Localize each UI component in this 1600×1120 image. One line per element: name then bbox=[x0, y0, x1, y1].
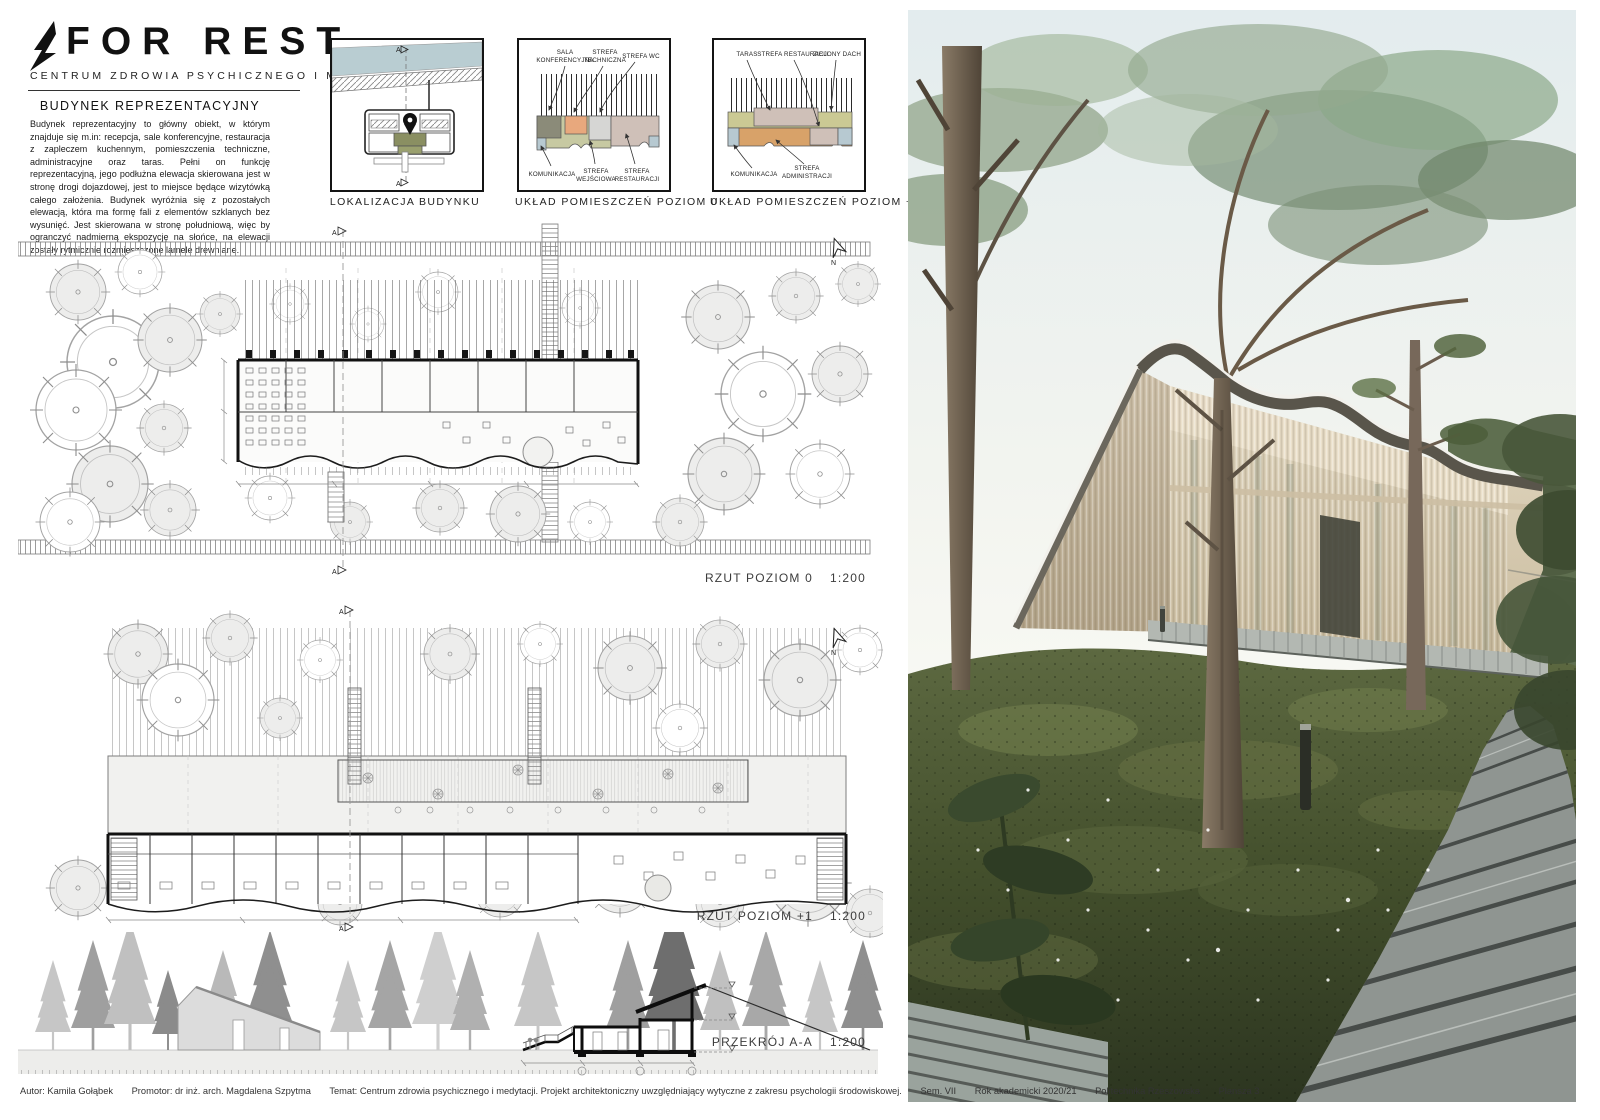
roof-terrace bbox=[338, 760, 748, 802]
section-marker: A bbox=[396, 47, 401, 54]
zone-label: ZIELONY DACH bbox=[813, 51, 861, 58]
diagram-level1-caption: UKŁAD POMIESZCZEŃ POZIOM +1 bbox=[710, 196, 864, 208]
diagram-location: A A bbox=[330, 38, 484, 192]
zone-label: RESTAURACJI bbox=[615, 176, 660, 183]
floor-plan-level0: A A N RZUT POZIOM 0 1:200 bbox=[18, 222, 883, 597]
section-scale: 1:200 bbox=[830, 1035, 866, 1049]
elevation-building bbox=[178, 987, 320, 1050]
footer-promotor: Promotor: dr inż. arch. Magdalena Szpytm… bbox=[132, 1086, 311, 1096]
zone-label: TECHNICZNA bbox=[584, 57, 627, 64]
north-label: N bbox=[831, 260, 836, 267]
north-label: N bbox=[831, 650, 836, 657]
diagram-level0-caption: UKŁAD POMIESZCZEŃ POZIOM 0 bbox=[515, 196, 669, 208]
entrance bbox=[1320, 515, 1360, 638]
plan0-label: RZUT POZIOM 0 bbox=[705, 571, 813, 585]
diagram-location-caption: LOKALIZACJA BUDYNKU bbox=[328, 196, 482, 208]
plan0-scale: 1:200 bbox=[830, 571, 866, 585]
zone-label: STREFA bbox=[794, 165, 820, 172]
plan1-scale: 1:200 bbox=[830, 909, 866, 923]
zone-label: STREFA bbox=[592, 49, 618, 56]
zone-label: STREFA bbox=[624, 168, 650, 175]
entry-stairs bbox=[328, 472, 344, 522]
footer-year: Rok akademicki 2020/21 bbox=[975, 1086, 1077, 1096]
section-marker: A bbox=[339, 609, 344, 616]
description-heading: BUDYNEK REPREZENTACYJNY bbox=[28, 99, 272, 113]
stair-core bbox=[817, 838, 843, 900]
footer-author: Autor: Kamila Gołąbek bbox=[20, 1086, 113, 1096]
presentation-board: FOR REST CENTRUM ZDROWIA PSYCHICZNEGO I … bbox=[0, 0, 1600, 1120]
building-plan bbox=[238, 360, 638, 475]
footer-credits: Autor: Kamila Gołąbek Promotor: dr inż. … bbox=[20, 1086, 1020, 1096]
diagram-level1-graphic: TARAS STREFA RESTAURACJI ZIELONY DACH KO… bbox=[714, 40, 864, 190]
logo-tree-icon bbox=[28, 20, 58, 72]
diagram-level1: TARAS STREFA RESTAURACJI ZIELONY DACH KO… bbox=[712, 38, 866, 192]
render-photo bbox=[908, 10, 1576, 1102]
section-drawing: PRZEKRÓJ A-A 1:200 bbox=[18, 932, 883, 1080]
diagram-level0-graphic: SALA KONFERENCYJNA STREFA TECHNICZNA STR… bbox=[519, 40, 669, 190]
zone-label: WEJŚCIOWA bbox=[576, 175, 616, 183]
lamella-field bbox=[240, 280, 638, 360]
diagram-location-graphic: A A bbox=[332, 40, 482, 190]
floor-plan-level1: A A N RZUT POZIOM +1 1:200 bbox=[18, 598, 883, 938]
zone-label: STREFA bbox=[583, 168, 609, 175]
diagram-level0: SALA KONFERENCYJNA STREFA TECHNICZNA STR… bbox=[517, 38, 671, 192]
people-silhouettes bbox=[528, 1038, 538, 1050]
logo-title: FOR REST bbox=[66, 22, 351, 61]
zone-label: SALA bbox=[557, 49, 574, 56]
footer-university: Politechnika Rzeszowska bbox=[1095, 1086, 1200, 1096]
section-label: PRZEKRÓJ A-A bbox=[712, 1034, 813, 1049]
footer-sheet: Plansza 3 bbox=[1219, 1086, 1260, 1096]
header-rule bbox=[28, 90, 300, 91]
section-marker: A bbox=[332, 230, 337, 237]
lobby-circle bbox=[523, 437, 553, 467]
zone-label: KOMUNIKACJA bbox=[529, 171, 577, 178]
zone-label: TARAS bbox=[736, 51, 757, 58]
zone-label: STREFA WC bbox=[622, 53, 660, 60]
stair-tower bbox=[528, 688, 541, 784]
section-marker: A bbox=[396, 181, 401, 188]
plan1-label: RZUT POZIOM +1 bbox=[697, 909, 813, 923]
logo: FOR REST bbox=[28, 20, 351, 72]
footer-semester: Sem. VII bbox=[920, 1086, 956, 1096]
zone-label: KOMUNIKACJA bbox=[731, 171, 779, 178]
stair-core bbox=[111, 838, 137, 900]
section-trees bbox=[35, 932, 883, 1050]
footer-topic: Temat: Centrum zdrowia psychicznego i me… bbox=[329, 1086, 902, 1096]
zone-label: ADMINISTRACJI bbox=[782, 173, 832, 180]
section-marker: A bbox=[332, 569, 337, 576]
